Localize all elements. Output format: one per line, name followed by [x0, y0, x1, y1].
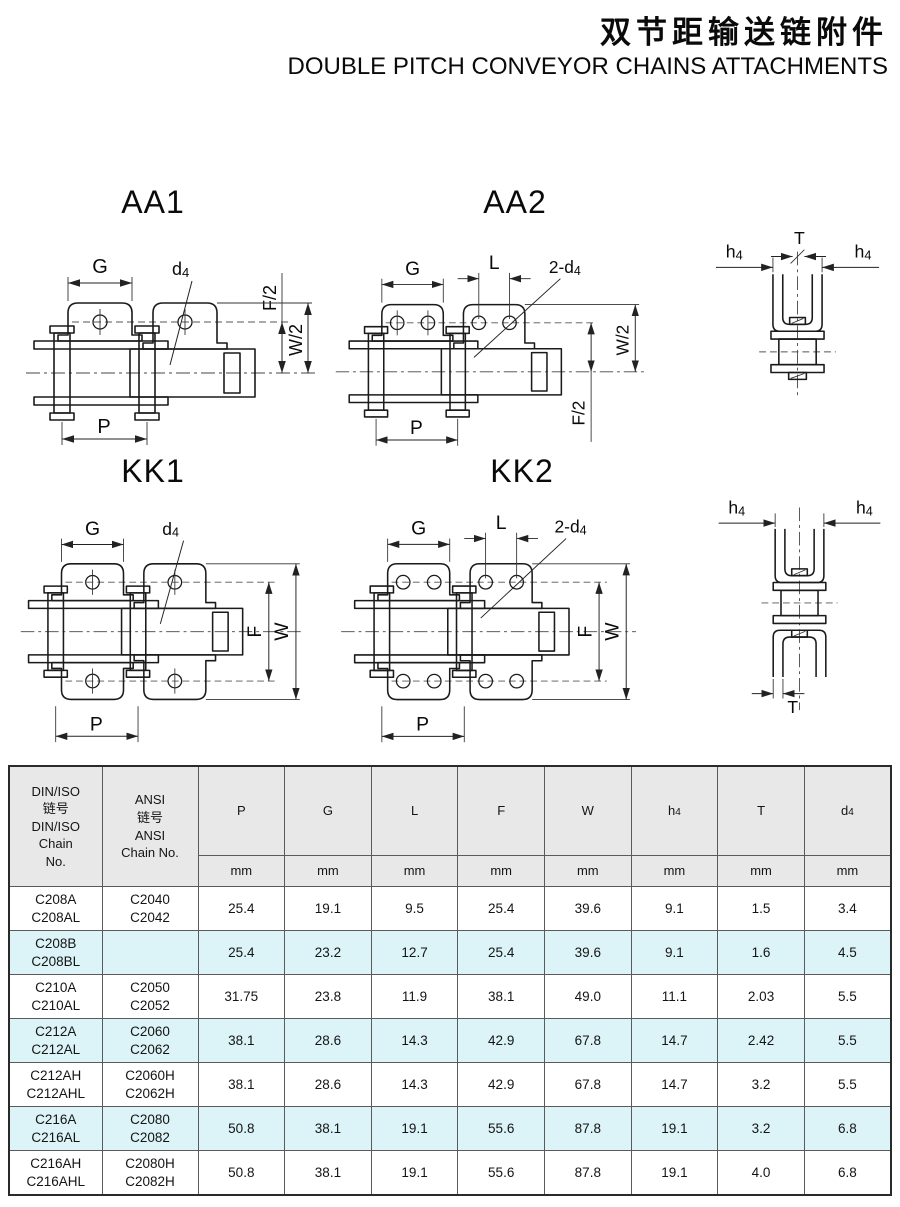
cell-value: 42.9 — [458, 1019, 545, 1063]
dimension-l: L — [458, 253, 531, 319]
svg-text:d4: d4 — [172, 259, 189, 280]
cell-value: 2.03 — [718, 975, 805, 1019]
dimension-f: F — [574, 582, 599, 681]
svg-text:h4: h4 — [726, 242, 743, 263]
header-dim-h4: h4 — [631, 766, 718, 856]
cell-value: 14.3 — [371, 1063, 458, 1107]
dimension-g: G — [68, 256, 132, 301]
header-ansi-chain-no: ANSI链号ANSIChain No. — [102, 766, 198, 887]
svg-text:h4: h4 — [856, 497, 873, 518]
svg-text:T: T — [787, 697, 798, 717]
cell-value: 50.8 — [198, 1107, 285, 1151]
svg-text:P: P — [416, 714, 429, 736]
cell-value: 38.1 — [198, 1019, 285, 1063]
cell-value: 14.7 — [631, 1019, 718, 1063]
cell-value: 87.8 — [545, 1151, 632, 1196]
diagram-aa1: AA1 — [20, 183, 320, 458]
cell-value: 11.9 — [371, 975, 458, 1019]
dimension-t: T — [771, 230, 826, 263]
cell-value: 5.5 — [804, 1063, 891, 1107]
cell-value: 31.75 — [198, 975, 285, 1019]
cell-value: 14.3 — [371, 1019, 458, 1063]
cell-din-iso-chain-no: C208BC208BL — [9, 931, 102, 975]
svg-text:F: F — [574, 626, 596, 638]
cell-value: 9.5 — [371, 887, 458, 931]
dimension-p: P — [382, 706, 464, 742]
page-title-en: DOUBLE PITCH CONVEYOR CHAINS ATTACHMENTS — [287, 53, 888, 81]
table-row: C212AHC212AHLC2060HC2062H38.128.614.342.… — [9, 1063, 891, 1107]
header-dim-w: W — [545, 766, 632, 856]
cell-din-iso-chain-no: C216AHC216AHL — [9, 1151, 102, 1196]
cell-ansi-chain-no: C2060C2062 — [102, 1019, 198, 1063]
svg-text:T: T — [794, 230, 805, 248]
cell-value: 23.8 — [285, 975, 372, 1019]
header-dim-t: T — [718, 766, 805, 856]
svg-text:L: L — [496, 512, 507, 534]
svg-text:P: P — [97, 416, 110, 438]
cell-value: 38.1 — [285, 1151, 372, 1196]
diagram-aa1-label: AA1 — [20, 183, 320, 223]
title-block: 双节距输送链附件 DOUBLE PITCH CONVEYOR CHAINS AT… — [287, 14, 888, 80]
dimension-h4-right: h4 — [822, 242, 879, 273]
table-body: C208AC208ALC2040C204225.419.19.525.439.6… — [9, 887, 891, 1196]
table-row: C210AC210ALC2050C205231.7523.811.938.149… — [9, 975, 891, 1019]
cell-ansi-chain-no: C2080C2082 — [102, 1107, 198, 1151]
cell-value: 28.6 — [285, 1019, 372, 1063]
header-dim-l: L — [371, 766, 458, 856]
cell-value: 14.7 — [631, 1063, 718, 1107]
svg-text:W: W — [601, 622, 623, 641]
cell-ansi-chain-no: C2080HC2082H — [102, 1151, 198, 1196]
table-row: C208BC208BL25.423.212.725.439.69.11.64.5 — [9, 931, 891, 975]
cell-value: 39.6 — [545, 887, 632, 931]
cell-value: 25.4 — [198, 887, 285, 931]
header-unit-mm: mm — [631, 856, 718, 887]
header-unit-mm: mm — [545, 856, 632, 887]
dimension-f2: F/2 — [568, 323, 591, 442]
dimension-p: P — [376, 418, 458, 446]
cell-value: 38.1 — [285, 1107, 372, 1151]
cell-value: 39.6 — [545, 931, 632, 975]
cell-value: 2.42 — [718, 1019, 805, 1063]
table-row: C216AHC216AHLC2080HC2082H50.838.119.155.… — [9, 1151, 891, 1196]
cell-value: 19.1 — [285, 887, 372, 931]
svg-text:G: G — [411, 518, 426, 540]
cell-value: 9.1 — [631, 887, 718, 931]
diagram-kk1-drawing: G d4 F W P — [15, 492, 325, 749]
cell-value: 67.8 — [545, 1019, 632, 1063]
cell-din-iso-chain-no: C210AC210AL — [9, 975, 102, 1019]
diagram-kk2-label: KK2 — [335, 452, 675, 492]
cell-value: 55.6 — [458, 1107, 545, 1151]
cell-din-iso-chain-no: C212AC212AL — [9, 1019, 102, 1063]
table-row: C208AC208ALC2040C204225.419.19.525.439.6… — [9, 887, 891, 931]
svg-text:F/2: F/2 — [260, 285, 280, 311]
diagram-kk2-drawing: G L 2-d4 F W — [335, 492, 675, 749]
cell-value: 12.7 — [371, 931, 458, 975]
svg-text:W/2: W/2 — [613, 325, 633, 356]
cell-ansi-chain-no: C2040C2042 — [102, 887, 198, 931]
table-head: DIN/ISO链号DIN/ISOChainNo.ANSI链号ANSIChain … — [9, 766, 891, 887]
svg-text:W: W — [271, 622, 293, 641]
cell-value: 25.4 — [458, 931, 545, 975]
dimension-f2: F/2 — [260, 273, 282, 373]
dimension-h4-left: h4 — [716, 242, 773, 273]
table-row: C212AC212ALC2060C206238.128.614.342.967.… — [9, 1019, 891, 1063]
cell-value: 19.1 — [631, 1107, 718, 1151]
dimension-g: G — [382, 259, 443, 303]
svg-text:d4: d4 — [162, 519, 179, 540]
svg-text:L: L — [489, 253, 500, 274]
svg-text:G: G — [85, 518, 100, 540]
diagram-kk-end-view: h4 h4 T — [705, 488, 895, 717]
diagram-aa2: AA2 — [330, 183, 666, 463]
header-unit-mm: mm — [371, 856, 458, 887]
table-row: C216AC216ALC2080C208250.838.119.155.687.… — [9, 1107, 891, 1151]
diagram-aa-end-view: h4 h4 T — [702, 230, 894, 402]
page-title-zh: 双节距输送链附件 — [287, 14, 888, 53]
header-dim-g: G — [285, 766, 372, 856]
cell-value: 55.6 — [458, 1151, 545, 1196]
diagram-aa2-drawing: G L 2-d4 W/2 F/2 — [330, 223, 666, 463]
dimension-g: G — [388, 518, 450, 562]
header-dim-p: P — [198, 766, 285, 856]
cell-value: 3.2 — [718, 1107, 805, 1151]
cell-value: 3.2 — [718, 1063, 805, 1107]
cell-value: 87.8 — [545, 1107, 632, 1151]
spec-table: DIN/ISO链号DIN/ISOChainNo.ANSI链号ANSIChain … — [8, 765, 892, 1196]
svg-text:2-d4: 2-d4 — [549, 257, 581, 278]
cell-value: 67.8 — [545, 1063, 632, 1107]
header-dim-d4: d4 — [804, 766, 891, 856]
dimension-w2: W/2 — [525, 305, 639, 372]
header-din-iso-chain-no: DIN/ISO链号DIN/ISOChainNo. — [9, 766, 102, 887]
u-attachment-bottom — [773, 630, 826, 677]
cell-value: 38.1 — [198, 1063, 285, 1107]
svg-text:P: P — [410, 418, 423, 439]
cell-value: 50.8 — [198, 1151, 285, 1196]
cell-value: 4.5 — [804, 931, 891, 975]
dimension-f: F — [244, 582, 269, 681]
diagram-aa-end-drawing: h4 h4 T — [702, 230, 894, 402]
dimension-w2: W/2 — [217, 303, 312, 373]
cell-value: 1.5 — [718, 887, 805, 931]
svg-text:P: P — [90, 713, 103, 735]
cell-value: 38.1 — [458, 975, 545, 1019]
svg-text:G: G — [405, 259, 420, 280]
diagram-kk-end-drawing: h4 h4 T — [705, 488, 895, 717]
svg-text:F: F — [244, 626, 266, 638]
header-unit-mm: mm — [458, 856, 545, 887]
cell-din-iso-chain-no: C212AHC212AHL — [9, 1063, 102, 1107]
cell-value: 3.4 — [804, 887, 891, 931]
diagram-kk1: KK1 — [15, 452, 325, 749]
diagram-kk2: KK2 — [335, 452, 675, 749]
svg-text:2-d4: 2-d4 — [554, 517, 586, 538]
svg-text:G: G — [92, 256, 108, 278]
header-unit-mm: mm — [804, 856, 891, 887]
cell-value: 25.4 — [458, 887, 545, 931]
svg-text:h4: h4 — [855, 242, 872, 263]
cell-value: 11.1 — [631, 975, 718, 1019]
svg-text:W/2: W/2 — [286, 324, 306, 356]
catalog-page: 双节距输送链附件 DOUBLE PITCH CONVEYOR CHAINS AT… — [0, 0, 900, 1207]
cell-value: 19.1 — [631, 1151, 718, 1196]
cell-value: 9.1 — [631, 931, 718, 975]
cell-value: 28.6 — [285, 1063, 372, 1107]
header-unit-mm: mm — [198, 856, 285, 887]
cell-value: 6.8 — [804, 1151, 891, 1196]
dimension-l: L — [464, 512, 538, 578]
dimension-t: T — [752, 679, 805, 717]
cell-value: 42.9 — [458, 1063, 545, 1107]
cell-value: 19.1 — [371, 1107, 458, 1151]
dimension-p: P — [56, 706, 138, 742]
svg-text:F/2: F/2 — [568, 401, 588, 426]
diagram-aa1-drawing: G d4 F/2 W/2 P — [20, 223, 320, 458]
cell-value: 4.0 — [718, 1151, 805, 1196]
cell-value: 1.6 — [718, 931, 805, 975]
dimension-p: P — [62, 416, 147, 445]
cell-ansi-chain-no: C2050C2052 — [102, 975, 198, 1019]
cell-value: 23.2 — [285, 931, 372, 975]
diagram-kk1-label: KK1 — [15, 452, 325, 492]
dimension-h4-right: h4 — [824, 497, 881, 527]
header-dim-f: F — [458, 766, 545, 856]
dimension-g: G — [62, 518, 124, 562]
cell-value: 25.4 — [198, 931, 285, 975]
cell-ansi-chain-no — [102, 931, 198, 975]
cell-din-iso-chain-no: C216AC216AL — [9, 1107, 102, 1151]
cell-value: 5.5 — [804, 1019, 891, 1063]
cell-value: 19.1 — [371, 1151, 458, 1196]
cell-value: 49.0 — [545, 975, 632, 1019]
diagram-aa2-label: AA2 — [330, 183, 666, 223]
cell-din-iso-chain-no: C208AC208AL — [9, 887, 102, 931]
cell-value: 6.8 — [804, 1107, 891, 1151]
dimension-h4-left: h4 — [719, 497, 776, 527]
header-unit-mm: mm — [718, 856, 805, 887]
cell-value: 5.5 — [804, 975, 891, 1019]
header-unit-mm: mm — [285, 856, 372, 887]
cell-ansi-chain-no: C2060HC2062H — [102, 1063, 198, 1107]
svg-text:h4: h4 — [728, 497, 745, 518]
